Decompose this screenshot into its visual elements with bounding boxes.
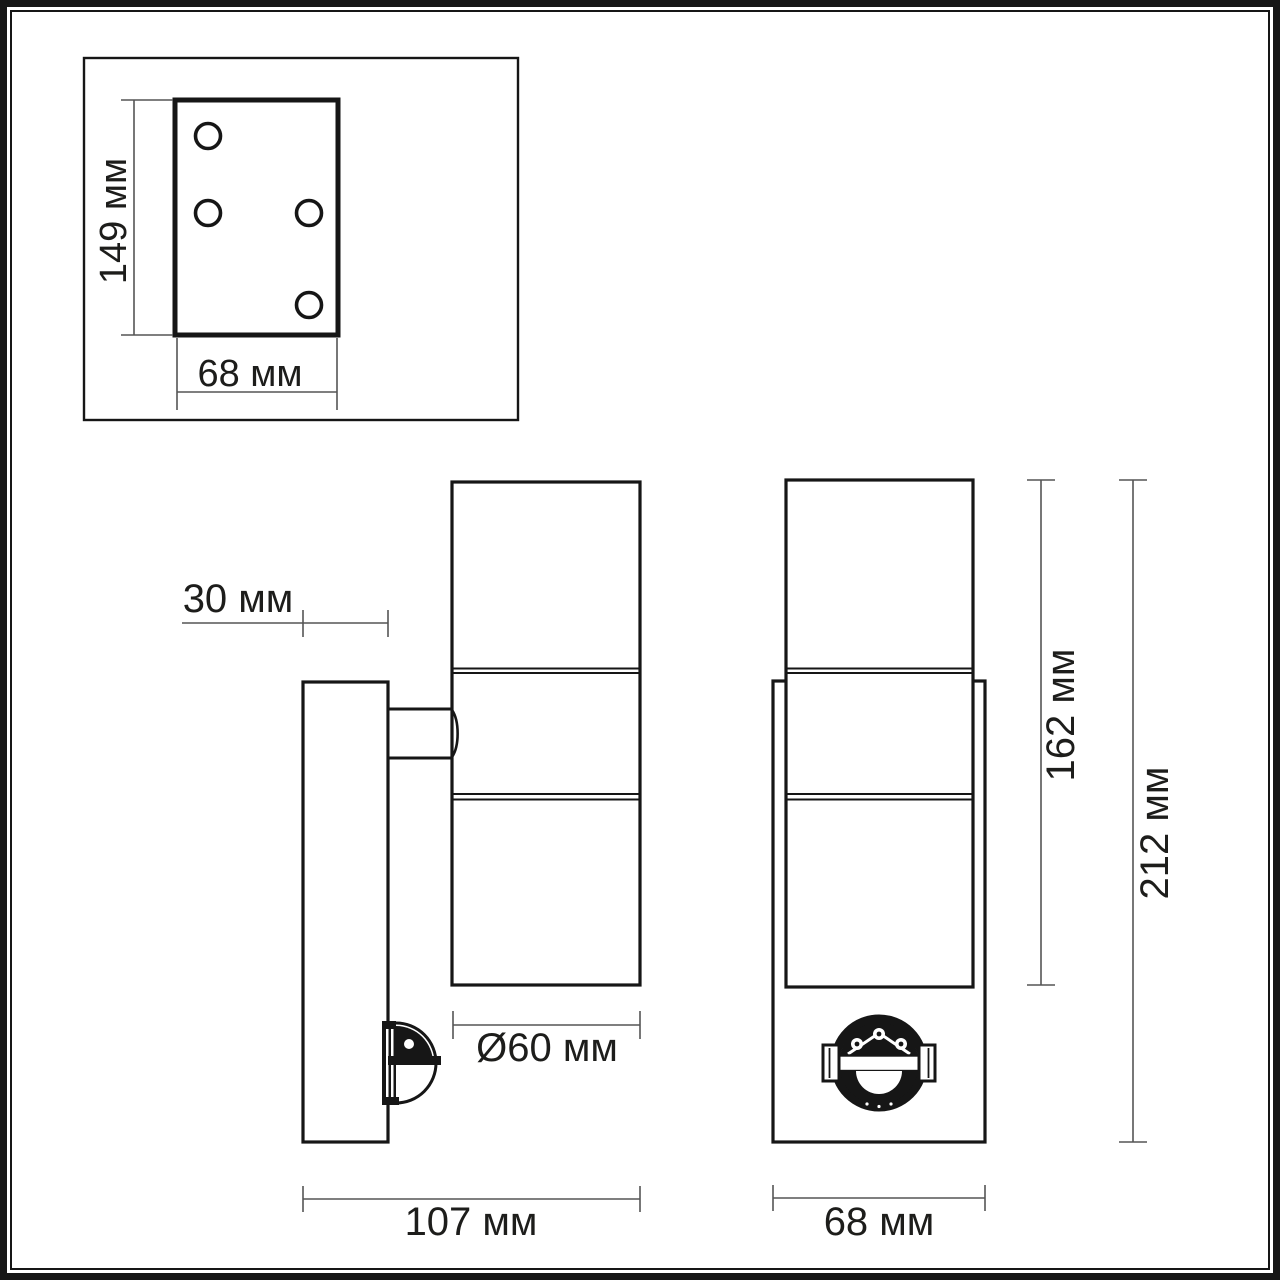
dimension-overall-height: 212 мм — [1119, 480, 1177, 1142]
dimension-body-height: 162 мм — [1027, 480, 1083, 985]
dimension-front-width: 68 мм — [773, 1185, 985, 1244]
sensor-tab-left — [823, 1045, 839, 1081]
lamp-body-side — [452, 482, 640, 985]
sensor-mid-bar — [388, 1056, 441, 1065]
dim-depth-label: 107 мм — [405, 1200, 538, 1244]
arm-connector — [388, 709, 452, 758]
front-view: 162 мм 212 мм 68 мм — [773, 480, 1177, 1244]
dim-diameter-label: Ø60 мм — [476, 1026, 618, 1070]
wall-plate-side — [303, 682, 388, 1142]
dim-plate-height-label: 149 мм — [93, 158, 135, 284]
sensor-tab-right — [919, 1045, 935, 1081]
dimension-wall-offset: 30 мм — [182, 577, 388, 637]
wall-lamp-dimension-drawing: 149 мм 68 мм — [0, 0, 1280, 1280]
dim-overall-height-label: 212 мм — [1133, 767, 1177, 900]
dim-body-height-label: 162 мм — [1039, 649, 1083, 782]
mounting-hole — [196, 124, 221, 149]
sensor-foot — [384, 1097, 399, 1105]
dim-wall-offset-label: 30 мм — [183, 577, 294, 621]
lamp-body-front — [786, 480, 973, 987]
sensor-band — [826, 1056, 932, 1072]
dimension-diameter: Ø60 мм — [453, 1011, 640, 1070]
mounting-hole — [196, 201, 221, 226]
dim-plate-width-label: 68 мм — [197, 353, 302, 395]
mounting-hole — [297, 201, 322, 226]
mounting-hole — [297, 293, 322, 318]
mounting-plate-inset: 149 мм 68 мм — [84, 58, 518, 420]
side-view: 30 мм Ø60 мм 107 мм — [182, 482, 640, 1244]
dim-front-width-label: 68 мм — [824, 1200, 935, 1244]
dimension-depth: 107 мм — [303, 1186, 640, 1244]
motion-sensor-side — [382, 1021, 441, 1105]
technical-drawing-page: 149 мм 68 мм — [0, 0, 1280, 1280]
